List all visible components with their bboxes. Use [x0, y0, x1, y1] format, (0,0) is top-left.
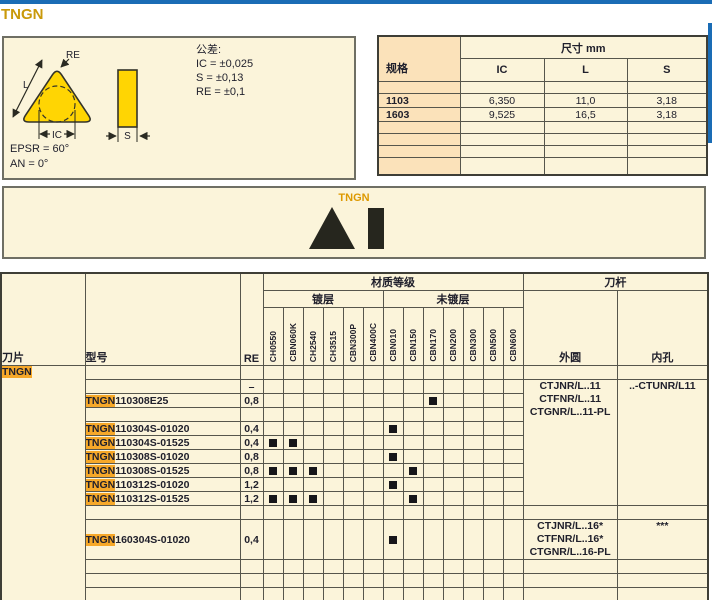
grade-cell — [423, 478, 443, 492]
grade-column-header: CBN010 — [383, 308, 403, 366]
model-prefix-highlight: TNGN — [86, 423, 116, 435]
dims-row — [378, 82, 707, 94]
grade-cell — [343, 394, 363, 408]
grade-column-label: CH3515 — [328, 331, 338, 362]
header-od: 外圆 — [523, 291, 617, 366]
grade-mark — [289, 439, 297, 447]
grade-mark — [269, 439, 277, 447]
grade-cell — [283, 478, 303, 492]
grade-cell — [483, 520, 503, 560]
grade-cell — [263, 520, 283, 560]
grade-cell — [363, 492, 383, 506]
tolerance-block: 公差: IC = ±0,025 S = ±0,13 RE = ±0,1 — [196, 43, 253, 99]
tolerance-ic: IC = ±0,025 — [196, 57, 253, 71]
grade-cell — [263, 560, 283, 574]
re-cell — [240, 560, 263, 574]
dims-spec-header: 规格 — [378, 36, 460, 82]
grade-cell — [463, 506, 483, 520]
grade-cell — [383, 394, 403, 408]
dims-value-cell — [544, 82, 627, 94]
grade-cell — [403, 408, 423, 422]
grade-cell — [343, 574, 363, 588]
grade-cell — [383, 422, 403, 436]
grade-cell — [483, 588, 503, 600]
shape-band: TNGN — [2, 186, 706, 259]
header-coated: 镀层 — [263, 291, 383, 308]
model-prefix-highlight: TNGN — [86, 493, 116, 505]
grade-cell — [323, 574, 343, 588]
model-cell — [85, 380, 240, 394]
grade-cell — [463, 436, 483, 450]
dims-value-cell — [460, 82, 544, 94]
grade-cell — [403, 450, 423, 464]
grade-cell — [383, 492, 403, 506]
dims-size-header: 尺寸 mm — [460, 36, 707, 59]
top-accent-bar — [0, 0, 712, 4]
grade-column-label: CBN400C — [368, 323, 378, 362]
model-cell: TNGN110304S-01525 — [85, 436, 240, 450]
grade-cell — [423, 450, 443, 464]
grade-cell — [503, 588, 523, 600]
grade-cell — [363, 574, 383, 588]
grade-cell — [443, 394, 463, 408]
grade-cell — [403, 366, 423, 380]
table-row: TNGN — [1, 366, 708, 380]
grade-cell — [363, 394, 383, 408]
grade-column-label: CH0550 — [268, 331, 278, 362]
grade-cell — [283, 436, 303, 450]
grade-cell — [403, 394, 423, 408]
dims-value-cell — [544, 134, 627, 146]
grade-cell — [403, 506, 423, 520]
model-prefix-highlight: TNGN — [2, 366, 32, 378]
model-cell — [85, 560, 240, 574]
grade-column-label: CBN600 — [508, 329, 518, 362]
grade-cell — [483, 366, 503, 380]
header-grade-group: 材质等级 — [263, 273, 523, 291]
grade-cell — [383, 478, 403, 492]
dims-value-cell — [627, 146, 707, 158]
holder-od-cell — [523, 506, 617, 520]
dims-spec-cell — [378, 122, 460, 134]
sideview-silhouette-icon — [368, 208, 384, 249]
model-cell: TNGN110312S-01525 — [85, 492, 240, 506]
grade-cell — [423, 366, 443, 380]
grade-cell — [303, 478, 323, 492]
grade-mark — [429, 397, 437, 405]
grade-cell — [443, 366, 463, 380]
model-cell — [85, 366, 240, 380]
grade-cell — [443, 422, 463, 436]
insert-diagram-panel: RE L IC S 公差: IC = ±0,025 S = ±0,13 RE =… — [2, 36, 356, 180]
grade-cell — [363, 380, 383, 394]
table-row — [1, 574, 708, 588]
holder-od-cell: CTJNR/L..11CTFNR/L..11CTGNR/L..11-PL — [523, 380, 617, 506]
re-cell: 0,8 — [240, 450, 263, 464]
main-table-body: TNGN–CTJNR/L..11CTFNR/L..11CTGNR/L..11-P… — [1, 366, 708, 600]
grade-cell — [323, 366, 343, 380]
grade-cell — [423, 422, 443, 436]
grade-column-header: CBN200 — [443, 308, 463, 366]
grade-cell — [323, 394, 343, 408]
grade-cell — [303, 380, 323, 394]
dims-col-ic: IC — [460, 59, 544, 82]
grade-column-label: CBN300P — [348, 324, 358, 362]
grade-cell — [383, 450, 403, 464]
grade-cell — [343, 408, 363, 422]
triangle-insert-shape — [24, 71, 90, 122]
dims-value-cell — [544, 122, 627, 134]
grade-column-label: CH2540 — [308, 331, 318, 362]
grade-cell — [463, 492, 483, 506]
model-prefix-highlight: TNGN — [86, 451, 116, 463]
grade-cell — [483, 394, 503, 408]
grade-cell — [443, 574, 463, 588]
grade-cell — [283, 506, 303, 520]
grade-cell — [383, 506, 403, 520]
side-view-shape — [118, 70, 137, 127]
grade-cell — [303, 450, 323, 464]
an-note: AN = 0° — [10, 158, 48, 170]
grade-cell — [343, 366, 363, 380]
grade-cell — [343, 506, 363, 520]
dims-spec-cell: 1103 — [378, 94, 460, 108]
grade-cell — [263, 588, 283, 600]
model-cell — [85, 588, 240, 600]
grade-cell — [283, 394, 303, 408]
grade-cell — [263, 408, 283, 422]
grade-cell — [363, 464, 383, 478]
grade-cell — [323, 520, 343, 560]
tolerance-s: S = ±0,13 — [196, 71, 253, 85]
grade-cell — [263, 574, 283, 588]
dims-row — [378, 122, 707, 134]
grade-cell — [423, 506, 443, 520]
grade-cell — [503, 520, 523, 560]
holder-id-cell — [617, 588, 708, 600]
grade-mark — [389, 425, 397, 433]
grade-cell — [283, 520, 303, 560]
grade-cell — [343, 464, 363, 478]
holder-id-cell: *** — [617, 520, 708, 560]
dims-value-cell — [544, 146, 627, 158]
grade-cell — [503, 380, 523, 394]
grade-cell — [363, 436, 383, 450]
grade-cell — [343, 436, 363, 450]
holder-od-cell — [523, 588, 617, 600]
grade-cell — [283, 366, 303, 380]
header-holder-group: 刀杆 — [523, 273, 708, 291]
grade-cell — [323, 492, 343, 506]
grade-cell — [483, 574, 503, 588]
grade-cell — [483, 408, 503, 422]
grade-cell — [403, 422, 423, 436]
grade-cell — [323, 478, 343, 492]
model-cell — [85, 408, 240, 422]
grade-cell — [423, 520, 443, 560]
grade-cell — [503, 450, 523, 464]
re-cell: 0,4 — [240, 436, 263, 450]
dims-row: 11036,35011,03,18 — [378, 94, 707, 108]
holder-id-cell — [617, 574, 708, 588]
grade-cell — [423, 380, 443, 394]
holder-od-cell: CTJNR/L..16*CTFNR/L..16*CTGNR/L..16-PL — [523, 520, 617, 560]
table-row: –CTJNR/L..11CTFNR/L..11CTGNR/L..11-PL..-… — [1, 380, 708, 394]
grade-column-label: CBN150 — [408, 329, 418, 362]
grade-column-label: CBN200 — [448, 329, 458, 362]
grade-cell — [383, 380, 403, 394]
blade-cell: TNGN — [1, 366, 85, 600]
re-cell: 0,4 — [240, 520, 263, 560]
table-row — [1, 560, 708, 574]
grade-cell — [323, 450, 343, 464]
grade-cell — [463, 450, 483, 464]
grade-mark — [309, 467, 317, 475]
grade-cell — [323, 560, 343, 574]
header-blade: 刀片 — [1, 273, 85, 366]
right-accent-bar — [708, 23, 712, 143]
grade-cell — [423, 492, 443, 506]
grade-column-label: CBN010 — [388, 329, 398, 362]
holder-od-cell — [523, 574, 617, 588]
grade-cell — [463, 520, 483, 560]
grade-cell — [303, 366, 323, 380]
grade-cell — [403, 380, 423, 394]
dims-value-cell — [460, 158, 544, 175]
grade-cell — [483, 380, 503, 394]
grade-cell — [403, 492, 423, 506]
dims-spec-cell — [378, 158, 460, 175]
grade-cell — [483, 492, 503, 506]
dims-value-cell: 6,350 — [460, 94, 544, 108]
grade-cell — [443, 492, 463, 506]
grade-cell — [383, 560, 403, 574]
grade-cell — [283, 450, 303, 464]
grade-cell — [323, 422, 343, 436]
grade-cell — [363, 520, 383, 560]
grade-cell — [283, 492, 303, 506]
tolerance-title: 公差: — [196, 43, 253, 57]
model-cell — [85, 506, 240, 520]
grade-cell — [343, 588, 363, 600]
grade-cell — [483, 450, 503, 464]
grade-cell — [363, 588, 383, 600]
grade-cell — [303, 574, 323, 588]
grade-cell — [263, 492, 283, 506]
dims-col-l: L — [544, 59, 627, 82]
grade-cell — [503, 436, 523, 450]
grade-cell — [343, 380, 363, 394]
grade-cell — [503, 408, 523, 422]
grade-cell — [383, 436, 403, 450]
dims-value-cell — [627, 134, 707, 146]
epsr-note: EPSR = 60° — [10, 143, 69, 155]
grade-cell — [363, 478, 383, 492]
page-title: TNGN — [1, 6, 44, 23]
grade-mark — [409, 495, 417, 503]
grade-cell — [463, 408, 483, 422]
triangle-silhouette-icon — [309, 207, 355, 249]
grade-cell — [303, 506, 323, 520]
grade-cell — [503, 366, 523, 380]
model-cell: TNGN110308S-01525 — [85, 464, 240, 478]
grade-cell — [403, 574, 423, 588]
grade-cell — [283, 408, 303, 422]
grade-column-header: CH3515 — [323, 308, 343, 366]
dims-row — [378, 146, 707, 158]
dims-value-cell — [460, 146, 544, 158]
re-cell — [240, 574, 263, 588]
re-cell — [240, 408, 263, 422]
re-cell: 0,4 — [240, 422, 263, 436]
dims-value-cell: 3,18 — [627, 108, 707, 122]
grade-column-header: CBN300P — [343, 308, 363, 366]
grade-cell — [343, 560, 363, 574]
grade-cell — [443, 436, 463, 450]
grade-cell — [263, 436, 283, 450]
tolerance-re: RE = ±0,1 — [196, 85, 253, 99]
ic-label: IC — [52, 130, 62, 141]
grade-cell — [303, 408, 323, 422]
grade-cell — [303, 492, 323, 506]
table-row — [1, 588, 708, 600]
grade-mark — [309, 495, 317, 503]
dims-value-cell: 11,0 — [544, 94, 627, 108]
dims-value-cell — [627, 158, 707, 175]
grade-cell — [483, 422, 503, 436]
grade-cell — [323, 464, 343, 478]
holder-od-line: CTJNR/L..11 — [524, 380, 617, 393]
dimensions-table: 规格 尺寸 mm IC L S 11036,35011,03,1816039,5… — [377, 35, 708, 176]
grade-mark — [389, 536, 397, 544]
grade-cell — [263, 380, 283, 394]
grade-cell — [423, 574, 443, 588]
dims-spec-cell — [378, 146, 460, 158]
dims-value-cell — [460, 122, 544, 134]
grade-cell — [323, 408, 343, 422]
grade-cell — [463, 574, 483, 588]
grade-cell — [503, 422, 523, 436]
re-cell: – — [240, 380, 263, 394]
grade-cell — [503, 492, 523, 506]
grade-cell — [323, 380, 343, 394]
grade-cell — [503, 574, 523, 588]
grade-cell — [283, 588, 303, 600]
grade-cell — [283, 574, 303, 588]
grade-cell — [263, 366, 283, 380]
shape-band-label: TNGN — [4, 192, 704, 204]
dims-spec-cell — [378, 82, 460, 94]
grade-cell — [443, 588, 463, 600]
dims-value-cell — [544, 158, 627, 175]
holder-od-line: CTFNR/L..11 — [524, 393, 617, 406]
grade-cell — [503, 464, 523, 478]
dims-value-cell — [460, 134, 544, 146]
grade-cell — [503, 560, 523, 574]
grade-cell — [503, 478, 523, 492]
table-row — [1, 506, 708, 520]
holder-id-cell — [617, 560, 708, 574]
grade-cell — [383, 520, 403, 560]
grade-cell — [463, 422, 483, 436]
model-prefix-highlight: TNGN — [86, 465, 116, 477]
grade-cell — [463, 560, 483, 574]
model-cell — [85, 574, 240, 588]
grade-cell — [423, 588, 443, 600]
grade-cell — [263, 464, 283, 478]
grade-cell — [263, 478, 283, 492]
grade-cell — [443, 506, 463, 520]
grade-cell — [483, 464, 503, 478]
grade-mark — [289, 495, 297, 503]
grade-cell — [303, 464, 323, 478]
dims-value-cell: 9,525 — [460, 108, 544, 122]
grade-cell — [423, 408, 443, 422]
grade-cell — [423, 464, 443, 478]
grade-column-label: CBN300 — [468, 329, 478, 362]
grade-cell — [263, 422, 283, 436]
grade-cell — [463, 366, 483, 380]
model-prefix-highlight: TNGN — [86, 395, 116, 407]
holder-id-cell — [617, 366, 708, 380]
grade-cell — [383, 574, 403, 588]
grade-cell — [403, 588, 423, 600]
shape-band-shapes — [0, 206, 696, 249]
holder-id-line: ..-CTUNR/L11 — [618, 380, 708, 393]
grade-cell — [443, 380, 463, 394]
dims-table-body: 11036,35011,03,1816039,52516,53,18 — [378, 82, 707, 175]
grade-cell — [363, 366, 383, 380]
dims-value-cell — [627, 82, 707, 94]
header-model: 型号 — [85, 273, 240, 366]
grade-cell — [443, 520, 463, 560]
grade-cell — [303, 436, 323, 450]
re-cell: 0,8 — [240, 394, 263, 408]
grade-cell — [263, 450, 283, 464]
re-cell — [240, 588, 263, 600]
grade-column-header: CH0550 — [263, 308, 283, 366]
grade-cell — [363, 408, 383, 422]
holder-id-cell: ..-CTUNR/L11 — [617, 380, 708, 506]
grade-cell — [463, 478, 483, 492]
grade-cell — [363, 506, 383, 520]
grade-cell — [443, 478, 463, 492]
model-cell: TNGN160304S-01020 — [85, 520, 240, 560]
grade-cell — [403, 436, 423, 450]
grade-cell — [263, 506, 283, 520]
grade-cell — [463, 588, 483, 600]
dims-col-s: S — [627, 59, 707, 82]
grade-cell — [343, 520, 363, 560]
grade-column-label: CBN060K — [288, 323, 298, 362]
grade-cell — [383, 408, 403, 422]
holder-od-line: CTGNR/L..16-PL — [524, 546, 617, 559]
model-prefix-highlight: TNGN — [86, 437, 116, 449]
model-cell: TNGN110308S-01020 — [85, 450, 240, 464]
dims-spec-cell — [378, 134, 460, 146]
grade-cell — [323, 436, 343, 450]
grade-column-header: CBN170 — [423, 308, 443, 366]
dims-value-cell: 3,18 — [627, 94, 707, 108]
grade-cell — [363, 422, 383, 436]
grade-cell — [323, 588, 343, 600]
grade-cell — [423, 436, 443, 450]
grade-matrix-table: 刀片 型号 RE 材质等级 刀杆 镀层 未镀层 外圆 内孔 CH0550CBN0… — [0, 272, 709, 600]
grade-cell — [343, 492, 363, 506]
grade-cell — [443, 408, 463, 422]
grade-cell — [403, 464, 423, 478]
dims-spec-cell: 1603 — [378, 108, 460, 122]
